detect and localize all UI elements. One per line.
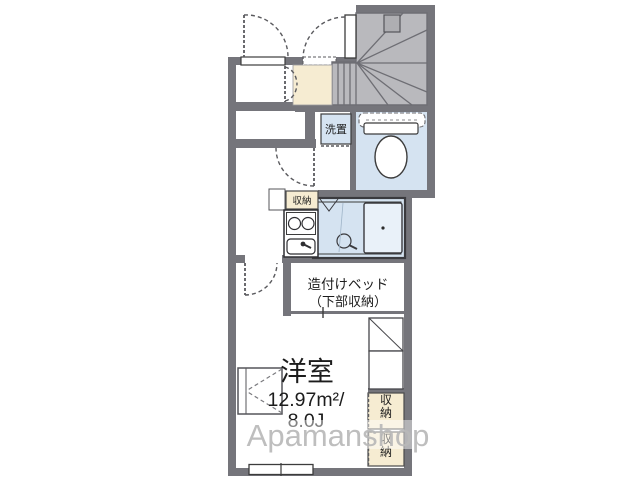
bed-label-line2: （下部収納） [309,294,387,309]
washroom-door-swing-arc [276,148,314,186]
bed-area: 造付けベッド （下部収納） [308,277,389,309]
kitchen: 収納 [269,189,318,257]
room-area-m2-label: 12.97m²/ [268,389,346,411]
closet-right-upper-label: 収納 [380,393,392,420]
bed-label-line1: 造付けベッド [308,277,389,292]
floor-plan-image: 洗置 収納 造付けベッド （下部収納） [0,0,640,486]
wall-hall-band [228,139,316,148]
wall-top-stairs [356,5,435,13]
watermark-text: Apamanshop [247,418,430,453]
kitchen-storage-label: 収納 [292,195,311,207]
wall-stub [305,112,315,142]
sink-icon [287,239,315,254]
floor-plan: 洗置 収納 造付けベッド （下部収納） [0,0,640,486]
watermark-group: Apamanshop [246,418,430,453]
toilet-tank [364,123,418,134]
stair-landing-box [384,15,400,32]
wall-closet-bottom [228,102,295,111]
room-type-label: 洋室 [280,357,334,387]
wall-room-top-left [228,255,245,263]
stove-icon [289,218,301,230]
entry-threshold [303,57,336,65]
toilet-icon [375,136,407,178]
kitchen-counter [269,189,285,210]
outer-door-swing-arc [244,15,288,57]
stove-burner-2 [302,218,314,230]
wall-bath-top [318,190,435,198]
washer-label: 洗置 [325,123,347,136]
bathroom [313,198,405,258]
room-door-swing-arc [245,263,277,295]
wall-left [228,57,236,476]
window-icon [241,57,285,65]
tub-dot [381,226,384,229]
entrance-floor [293,65,332,105]
wall-bed-left [283,255,291,316]
shelf-box-plain [369,351,403,389]
entry-door-leaf [345,15,356,58]
entry-door-swing-arc [303,17,345,59]
wall-right-upper [427,5,435,198]
bed-front-edge [291,311,404,314]
toilet-room [356,112,427,190]
